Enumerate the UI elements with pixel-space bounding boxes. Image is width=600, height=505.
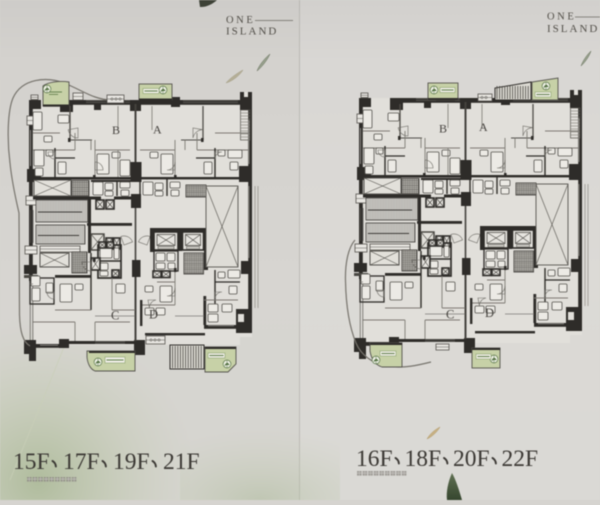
svg-text:ONE: ONE bbox=[226, 15, 255, 26]
svg-text:15F: 15F bbox=[13, 449, 50, 475]
svg-text:A: A bbox=[479, 120, 488, 134]
svg-text:A: A bbox=[153, 123, 162, 137]
svg-text:ISLAND: ISLAND bbox=[226, 26, 278, 38]
svg-text:16F: 16F bbox=[356, 446, 393, 472]
svg-text:21F: 21F bbox=[163, 449, 200, 475]
svg-text:C: C bbox=[446, 308, 454, 322]
svg-text:D: D bbox=[149, 308, 158, 322]
svg-text:B: B bbox=[112, 123, 120, 137]
svg-text:ISLAND: ISLAND bbox=[547, 23, 599, 35]
svg-text:D: D bbox=[485, 306, 494, 320]
svg-text:20F: 20F bbox=[453, 446, 490, 472]
svg-text:C: C bbox=[111, 309, 119, 323]
svg-text:17F: 17F bbox=[63, 449, 100, 475]
svg-text:19F: 19F bbox=[113, 449, 150, 475]
svg-text:ONE: ONE bbox=[547, 12, 576, 23]
svg-text:B: B bbox=[439, 122, 447, 136]
svg-text:18F: 18F bbox=[405, 446, 442, 472]
svg-text:22F: 22F bbox=[502, 446, 539, 472]
